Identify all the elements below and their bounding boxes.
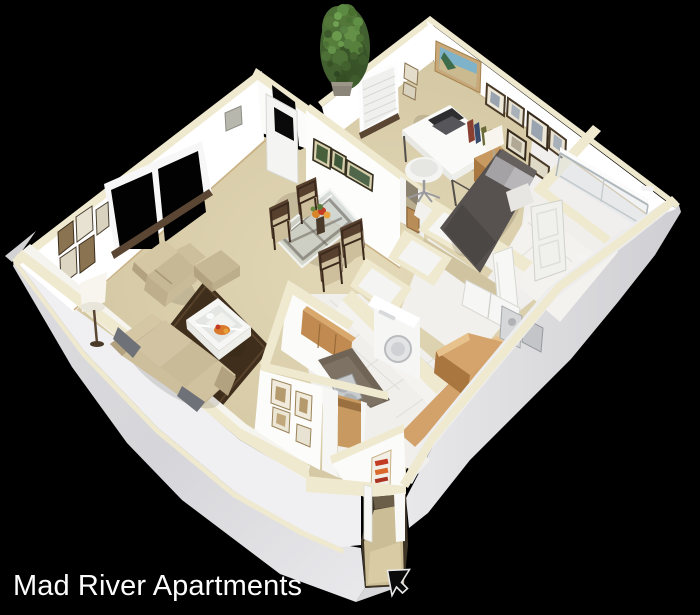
svg-text:Mad River Apartments: Mad River Apartments <box>13 570 302 602</box>
